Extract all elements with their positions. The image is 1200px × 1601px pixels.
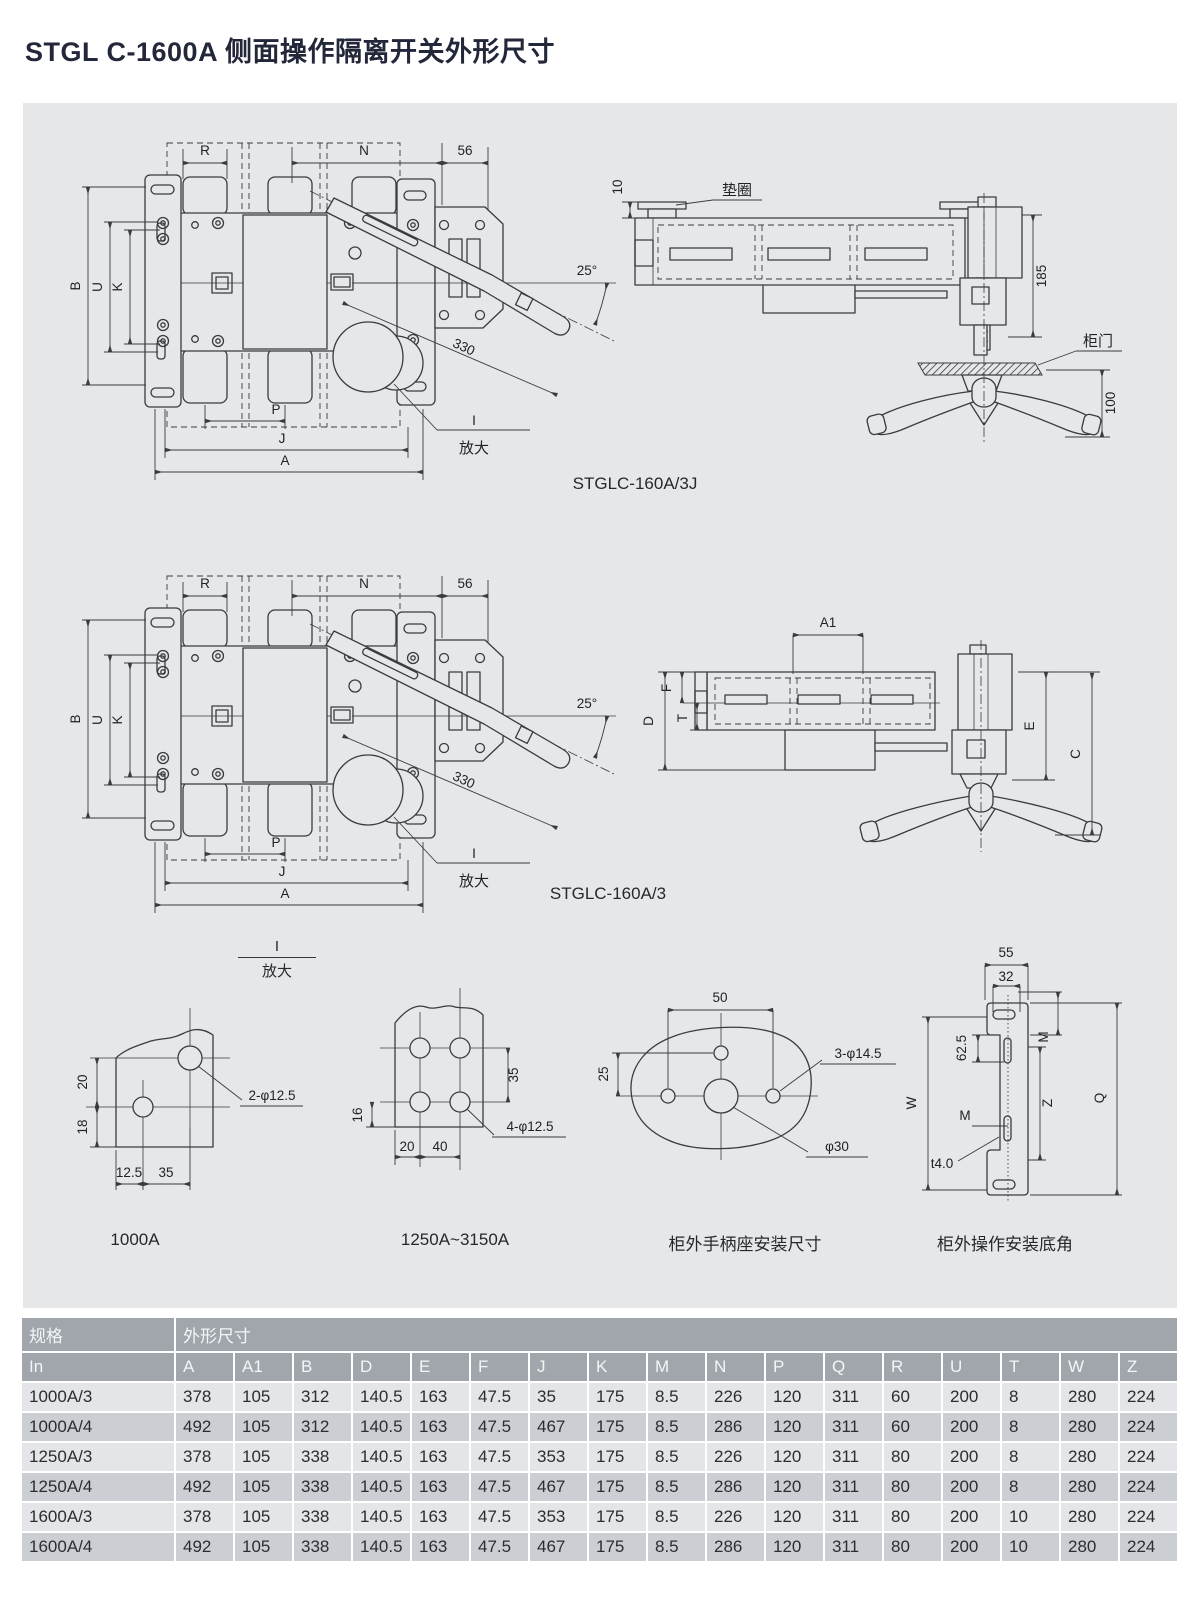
table-column-header: A1 <box>235 1353 292 1381</box>
dim-label: 2-φ12.5 <box>248 1088 295 1103</box>
detail-zoom-marker: I 放大 <box>238 938 316 981</box>
table-cell: 105 <box>235 1443 292 1471</box>
dim-label: 放大 <box>459 873 489 890</box>
table-cell: 224 <box>1120 1443 1177 1471</box>
table-column-header: E <box>412 1353 469 1381</box>
dim-label: F <box>659 684 674 692</box>
dim-label: Z <box>1040 1099 1055 1107</box>
table-cell: 280 <box>1061 1503 1118 1531</box>
dim-label: P <box>271 402 280 417</box>
caption-mount-bracket: 柜外操作安装底角 <box>885 1230 1125 1255</box>
table-cell: 378 <box>176 1383 233 1411</box>
dim-label: D <box>641 716 656 726</box>
table-row: 1250A/3378105338140.516347.53531758.5226… <box>22 1443 1177 1471</box>
table-cell: 47.5 <box>471 1443 528 1471</box>
table-cell: 1000A/3 <box>22 1383 174 1411</box>
dim-label: 330 <box>451 335 478 358</box>
table-cell: 311 <box>825 1383 882 1411</box>
table-cell: 280 <box>1061 1413 1118 1441</box>
table-cell: 224 <box>1120 1503 1177 1531</box>
table-cell: 226 <box>707 1443 764 1471</box>
table-cell: 492 <box>176 1533 233 1561</box>
table-cell: 200 <box>943 1533 1000 1561</box>
table-cell: 1250A/3 <box>22 1443 174 1471</box>
table-cell: 163 <box>412 1443 469 1471</box>
table-cell: 105 <box>235 1473 292 1501</box>
table-cell: 163 <box>412 1503 469 1531</box>
table-column-header: M <box>648 1353 705 1381</box>
dim-label: 35 <box>158 1165 173 1180</box>
table-cell: 1000A/4 <box>22 1413 174 1441</box>
table-cell: 224 <box>1120 1413 1177 1441</box>
table-cell: 175 <box>589 1533 646 1561</box>
table-column-header: D <box>353 1353 410 1381</box>
table-cell: 140.5 <box>353 1473 410 1501</box>
table-cell: 8.5 <box>648 1473 705 1501</box>
side-view-3j-drawing: 10 垫圈 185 柜门 100 <box>610 145 1130 460</box>
table-row: 1000A/3378105312140.516347.5351758.52261… <box>22 1383 1177 1411</box>
dim-label: U <box>90 282 105 292</box>
dim-label: 40 <box>432 1139 447 1154</box>
dim-label: B <box>68 281 83 290</box>
table-cell: 224 <box>1120 1473 1177 1501</box>
dim-label: T <box>675 714 690 722</box>
dim-label: 18 <box>75 1119 90 1134</box>
table-cell: 163 <box>412 1533 469 1561</box>
table-column-header: W <box>1061 1353 1118 1381</box>
dim-label: A1 <box>820 615 837 630</box>
table-cell: 1600A/4 <box>22 1533 174 1561</box>
table-row: 1600A/4492105338140.516347.54671758.5286… <box>22 1533 1177 1561</box>
table-cell: 120 <box>766 1503 823 1531</box>
table-cell: 80 <box>884 1533 941 1561</box>
dim-label: 12.5 <box>116 1165 142 1180</box>
handle-seat-drawing: 50 25 3-φ14.5 φ30 <box>600 980 900 1195</box>
table-cell: 280 <box>1061 1383 1118 1411</box>
table-row: 1600A/3378105338140.516347.53531758.5226… <box>22 1503 1177 1531</box>
table-cell: 1250A/4 <box>22 1473 174 1501</box>
table-cell: 8.5 <box>648 1443 705 1471</box>
dim-label: 330 <box>451 768 478 791</box>
dimensions-table: 规格外形尺寸InAA1BDEFJKMNPQRUTWZ1000A/33781053… <box>20 1316 1179 1563</box>
table-cell: 175 <box>589 1473 646 1501</box>
table-cell: 60 <box>884 1413 941 1441</box>
table-header-dims: 外形尺寸 <box>176 1318 1177 1351</box>
dim-label: U <box>90 715 105 725</box>
detail-zoom-label: 放大 <box>238 958 316 981</box>
table-cell: 8 <box>1002 1443 1059 1471</box>
table-column-header: B <box>294 1353 351 1381</box>
table-column-header: K <box>589 1353 646 1381</box>
dim-label: 32 <box>998 969 1013 984</box>
table-cell: 492 <box>176 1473 233 1501</box>
table-row: 1250A/4492105338140.516347.54671758.5286… <box>22 1473 1177 1501</box>
table-cell: 311 <box>825 1503 882 1531</box>
dim-label: 185 <box>1034 265 1049 288</box>
table-cell: 140.5 <box>353 1383 410 1411</box>
table-cell: 224 <box>1120 1383 1177 1411</box>
table-cell: 8 <box>1002 1383 1059 1411</box>
table-column-header: P <box>766 1353 823 1381</box>
dim-label: R <box>200 143 210 158</box>
dim-label: 62.5 <box>954 1035 969 1061</box>
table-cell: 338 <box>294 1473 351 1501</box>
table-cell: 163 <box>412 1473 469 1501</box>
table-cell: 8.5 <box>648 1533 705 1561</box>
dim-label: t4.0 <box>931 1156 954 1171</box>
dim-label: φ30 <box>825 1139 849 1154</box>
dim-label: P <box>271 835 280 850</box>
dim-label: M <box>1036 1031 1051 1042</box>
washer-label: 垫圈 <box>722 182 752 199</box>
table-cell: 8.5 <box>648 1503 705 1531</box>
table-cell: 60 <box>884 1383 941 1411</box>
table-cell: 8.5 <box>648 1413 705 1441</box>
dim-label: 3-φ14.5 <box>834 1046 881 1061</box>
dim-label: I <box>472 846 476 861</box>
dim-label: W <box>904 1096 919 1109</box>
table-cell: 286 <box>707 1533 764 1561</box>
table-cell: 311 <box>825 1443 882 1471</box>
table-cell: 80 <box>884 1503 941 1531</box>
table-cell: 338 <box>294 1503 351 1531</box>
table-cell: 353 <box>530 1503 587 1531</box>
table-cell: 280 <box>1061 1443 1118 1471</box>
dim-label: 25 <box>596 1066 611 1081</box>
dim-label: B <box>68 714 83 723</box>
table-cell: 35 <box>530 1383 587 1411</box>
table-cell: 378 <box>176 1503 233 1531</box>
table-cell: 280 <box>1061 1473 1118 1501</box>
table-column-header: T <box>1002 1353 1059 1381</box>
caption-handle-seat: 柜外手柄座安装尺寸 <box>625 1230 865 1255</box>
table-cell: 8 <box>1002 1473 1059 1501</box>
table-cell: 280 <box>1061 1533 1118 1561</box>
dim-label: C <box>1068 749 1083 759</box>
dim-label: E <box>1022 721 1037 730</box>
table-column-header: U <box>943 1353 1000 1381</box>
table-column-header: N <box>707 1353 764 1381</box>
table-cell: 105 <box>235 1413 292 1441</box>
table-cell: 200 <box>943 1413 1000 1441</box>
table-cell: 338 <box>294 1443 351 1471</box>
table-cell: 311 <box>825 1473 882 1501</box>
dim-label: A <box>280 886 289 901</box>
table-cell: 200 <box>943 1503 1000 1531</box>
table-cell: 10 <box>1002 1503 1059 1531</box>
table-cell: 80 <box>884 1443 941 1471</box>
dim-label: 56 <box>457 576 472 591</box>
mount-bracket-drawing: 55 32 M 62.5 W Z M t4.0 Q <box>900 940 1160 1245</box>
table-cell: 338 <box>294 1533 351 1561</box>
table-cell: 8 <box>1002 1413 1059 1441</box>
dim-label: K <box>110 715 125 724</box>
dim-label: 25° <box>577 263 597 278</box>
table-cell: 175 <box>589 1413 646 1441</box>
table-cell: 120 <box>766 1413 823 1441</box>
dim-label: 25° <box>577 696 597 711</box>
dim-label: 20 <box>75 1074 90 1089</box>
table-cell: 311 <box>825 1413 882 1441</box>
caption-1000a: 1000A <box>75 1230 195 1250</box>
table-column-header: J <box>530 1353 587 1381</box>
dim-label: 50 <box>712 990 727 1005</box>
caption-stglc-160a-3j: STGLC-160A/3J <box>535 474 735 494</box>
table-cell: 467 <box>530 1413 587 1441</box>
table-cell: 312 <box>294 1413 351 1441</box>
table-cell: 492 <box>176 1413 233 1441</box>
dim-label: 35 <box>506 1067 521 1082</box>
table-cell: 47.5 <box>471 1533 528 1561</box>
detail-ref-label: I <box>238 938 316 958</box>
table-column-header: Z <box>1120 1353 1177 1381</box>
front-view-middle-drawing: 25° 330 R N 56 B U K P J A I 放大 <box>60 568 620 923</box>
table-cell: 105 <box>235 1383 292 1411</box>
dim-label: 16 <box>350 1107 365 1122</box>
table-cell: 10 <box>1002 1533 1059 1561</box>
dim-label: 56 <box>457 143 472 158</box>
table-cell: 200 <box>943 1473 1000 1501</box>
dim-label: R <box>200 576 210 591</box>
dim-label: 放大 <box>459 440 489 457</box>
table-row: 1000A/4492105312140.516347.54671758.5286… <box>22 1413 1177 1441</box>
dim-label: K <box>110 282 125 291</box>
table-cell: 163 <box>412 1383 469 1411</box>
page-title: STGL C-1600A 侧面操作隔离开关外形尺寸 <box>25 30 555 69</box>
table-cell: 120 <box>766 1533 823 1561</box>
door-label: 柜门 <box>1083 333 1113 350</box>
detail-1250a-drawing: 35 16 20 40 4-φ12.5 <box>358 985 588 1190</box>
dim-label: J <box>279 431 286 446</box>
table-column-header: F <box>471 1353 528 1381</box>
table-cell: 120 <box>766 1443 823 1471</box>
front-view-top-drawing: 25° 330 R N 56 B U K P J A I 放大 <box>60 135 620 490</box>
table-cell: 378 <box>176 1443 233 1471</box>
dim-label: 20 <box>399 1139 414 1154</box>
table-cell: 140.5 <box>353 1503 410 1531</box>
table-cell: 47.5 <box>471 1413 528 1441</box>
table-cell: 467 <box>530 1473 587 1501</box>
dim-label: N <box>359 143 369 158</box>
dim-label: 100 <box>1103 392 1118 415</box>
table-cell: 200 <box>943 1443 1000 1471</box>
dim-label: M <box>959 1108 970 1123</box>
table-cell: 47.5 <box>471 1503 528 1531</box>
table-cell: 47.5 <box>471 1383 528 1411</box>
table-cell: 1600A/3 <box>22 1503 174 1531</box>
table-cell: 312 <box>294 1383 351 1411</box>
table-cell: 226 <box>707 1383 764 1411</box>
table-cell: 140.5 <box>353 1413 410 1441</box>
table-cell: 120 <box>766 1473 823 1501</box>
table-cell: 140.5 <box>353 1443 410 1471</box>
table-cell: 286 <box>707 1413 764 1441</box>
detail-1000a-drawing: 20 18 12.5 35 2-φ12.5 <box>70 980 310 1200</box>
dim-label: J <box>279 864 286 879</box>
table-cell: 80 <box>884 1473 941 1501</box>
table-cell: 105 <box>235 1533 292 1561</box>
table-cell: 120 <box>766 1383 823 1411</box>
table-cell: 353 <box>530 1443 587 1471</box>
dim-label: 4-φ12.5 <box>506 1119 553 1134</box>
table-cell: 175 <box>589 1443 646 1471</box>
table-column-header: In <box>22 1353 174 1381</box>
table-cell: 175 <box>589 1503 646 1531</box>
table-cell: 226 <box>707 1503 764 1531</box>
table-cell: 140.5 <box>353 1533 410 1561</box>
table-cell: 224 <box>1120 1533 1177 1561</box>
table-cell: 286 <box>707 1473 764 1501</box>
table-column-header: R <box>884 1353 941 1381</box>
table-cell: 47.5 <box>471 1473 528 1501</box>
side-view-drawing: A1 F T D E C <box>600 590 1160 925</box>
caption-1250a: 1250A~3150A <box>375 1230 535 1250</box>
table-cell: 8.5 <box>648 1383 705 1411</box>
table-header-spec: 规格 <box>22 1318 174 1351</box>
table-cell: 200 <box>943 1383 1000 1411</box>
dim-label: A <box>280 453 289 468</box>
table-column-header: A <box>176 1353 233 1381</box>
table-cell: 105 <box>235 1503 292 1531</box>
dim-label: I <box>472 413 476 428</box>
table-column-header: Q <box>825 1353 882 1381</box>
table-cell: 175 <box>589 1383 646 1411</box>
caption-stglc-160a-3: STGLC-160A/3 <box>508 884 708 904</box>
dim-label: N <box>359 576 369 591</box>
dim-label: 55 <box>998 945 1013 960</box>
dim-label: Q <box>1092 1093 1107 1104</box>
table-cell: 467 <box>530 1533 587 1561</box>
dim-label: 10 <box>610 179 625 194</box>
table-cell: 163 <box>412 1413 469 1441</box>
table-cell: 311 <box>825 1533 882 1561</box>
